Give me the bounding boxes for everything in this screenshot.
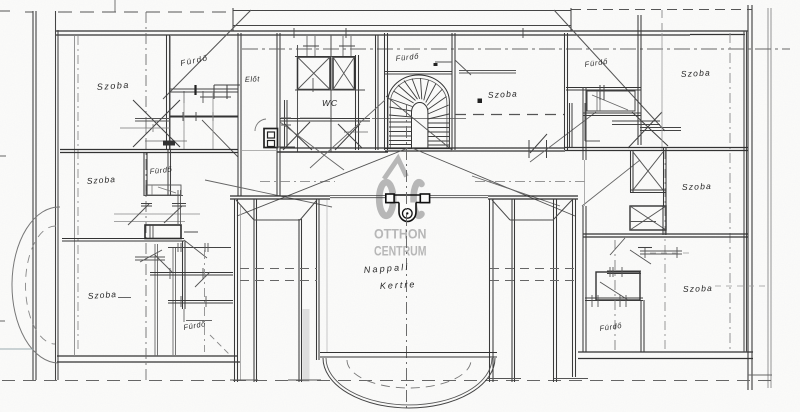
- svg-text:Szoba: Szoba: [683, 283, 713, 294]
- svg-text:Szoba: Szoba: [682, 181, 712, 192]
- svg-text:Szoba: Szoba: [681, 67, 712, 79]
- svg-text:Szoba: Szoba: [488, 88, 519, 100]
- svg-text:CENTRUM: CENTRUM: [374, 243, 427, 258]
- svg-text:WC: WC: [322, 98, 338, 108]
- svg-text:Szoba: Szoba: [87, 289, 117, 301]
- svg-text:Kertre: Kertre: [380, 279, 417, 291]
- svg-text:Előt: Előt: [245, 74, 261, 84]
- svg-text:Szoba: Szoba: [86, 174, 116, 186]
- svg-text:OTTHON: OTTHON: [374, 227, 427, 242]
